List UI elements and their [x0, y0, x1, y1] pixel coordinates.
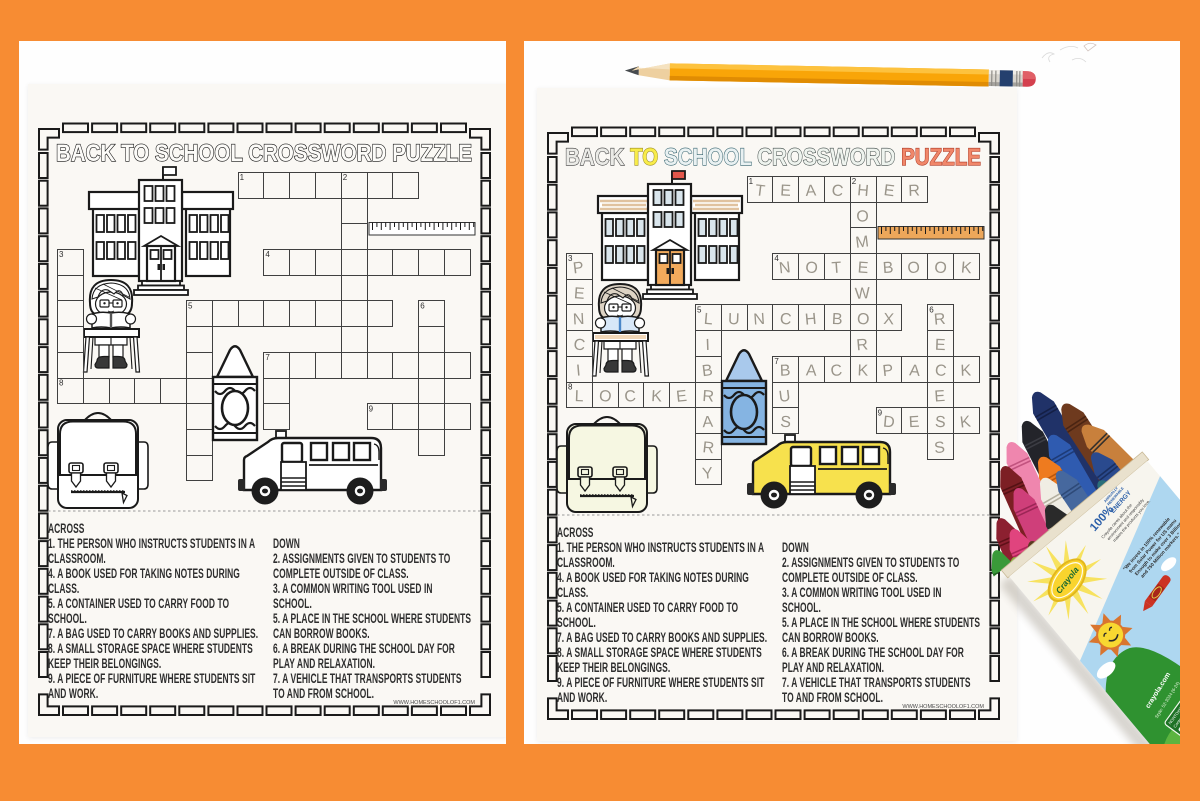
svg-text:R: R	[702, 439, 715, 457]
svg-text:1: 1	[749, 177, 754, 186]
svg-text:W: W	[854, 285, 871, 303]
svg-text:1: 1	[240, 173, 245, 182]
svg-text:5: 5	[188, 302, 193, 311]
svg-text:H: H	[804, 311, 817, 329]
svg-text:BACK TO SCHOOL CROSSWORD PUZZL: BACK TO SCHOOL CROSSWORD PUZZLE	[565, 144, 981, 171]
svg-text:S: S	[780, 414, 792, 432]
svg-text:O: O	[856, 208, 869, 225]
svg-text:A: A	[805, 182, 817, 200]
svg-text:K: K	[857, 362, 869, 379]
svg-text:E: E	[934, 388, 946, 406]
svg-text:3: 3	[59, 250, 64, 259]
svg-text:K: K	[651, 388, 663, 406]
svg-text:I: I	[705, 337, 710, 354]
svg-text:R: R	[856, 336, 869, 354]
svg-text:K: K	[960, 259, 972, 277]
svg-text:E: E	[883, 182, 896, 200]
svg-text:T: T	[754, 182, 766, 200]
svg-text:N: N	[572, 311, 584, 329]
svg-text:L: L	[703, 311, 713, 329]
svg-text:N: N	[753, 311, 766, 329]
svg-text:H: H	[857, 182, 870, 200]
svg-text:9: 9	[369, 404, 374, 413]
svg-text:A: A	[909, 362, 921, 380]
svg-text:X: X	[883, 311, 895, 329]
svg-text:E: E	[780, 182, 792, 200]
svg-text:R: R	[908, 183, 920, 200]
svg-text:B: B	[831, 311, 843, 329]
svg-text:BACK TO SCHOOL CROSSWORD PUZZL: BACK TO SCHOOL CROSSWORD PUZZLE	[56, 140, 472, 167]
svg-text:E: E	[935, 337, 946, 354]
svg-text:O: O	[933, 259, 947, 277]
svg-text:T: T	[831, 259, 842, 277]
svg-text:O: O	[856, 311, 870, 329]
svg-text:8: 8	[568, 383, 573, 392]
svg-text:5: 5	[697, 306, 702, 315]
svg-text:2: 2	[343, 173, 348, 182]
svg-text:8: 8	[59, 379, 64, 388]
svg-text:7: 7	[265, 353, 270, 362]
svg-text:U: U	[778, 388, 792, 406]
svg-text:9: 9	[878, 408, 883, 417]
svg-text:O: O	[907, 259, 921, 277]
svg-text:P: P	[572, 259, 585, 277]
svg-text:C: C	[624, 388, 637, 406]
svg-text:S: S	[935, 414, 947, 432]
svg-text:K: K	[959, 413, 972, 431]
svg-text:R: R	[933, 311, 946, 329]
svg-text:6: 6	[420, 302, 425, 311]
svg-text:R: R	[702, 388, 715, 406]
svg-text:A: A	[806, 362, 818, 379]
svg-text:E: E	[675, 388, 687, 406]
svg-text:I: I	[576, 362, 582, 379]
svg-text:E: E	[573, 285, 585, 303]
svg-text:L: L	[574, 388, 584, 405]
svg-text:O: O	[598, 388, 612, 406]
svg-text:E: E	[857, 259, 869, 277]
svg-text:D: D	[882, 414, 895, 432]
svg-text:2: 2	[852, 177, 857, 186]
svg-text:K: K	[960, 362, 972, 379]
svg-text:E: E	[908, 414, 920, 432]
svg-text:B: B	[701, 362, 714, 380]
svg-text:M: M	[855, 233, 870, 251]
svg-text:4: 4	[265, 250, 270, 259]
svg-text:C: C	[830, 362, 843, 380]
svg-text:A: A	[702, 414, 714, 432]
svg-text:S: S	[933, 439, 945, 457]
svg-text:Y: Y	[701, 465, 713, 483]
svg-text:B: B	[882, 259, 894, 277]
svg-text:C: C	[779, 311, 792, 329]
svg-text:C: C	[934, 362, 948, 380]
svg-text:P: P	[882, 362, 894, 380]
svg-text:C: C	[573, 336, 586, 354]
svg-text:O: O	[804, 259, 818, 277]
svg-text:C: C	[831, 182, 845, 200]
svg-text:U: U	[728, 311, 740, 328]
svg-text:B: B	[780, 362, 791, 379]
svg-text:N: N	[778, 259, 791, 277]
